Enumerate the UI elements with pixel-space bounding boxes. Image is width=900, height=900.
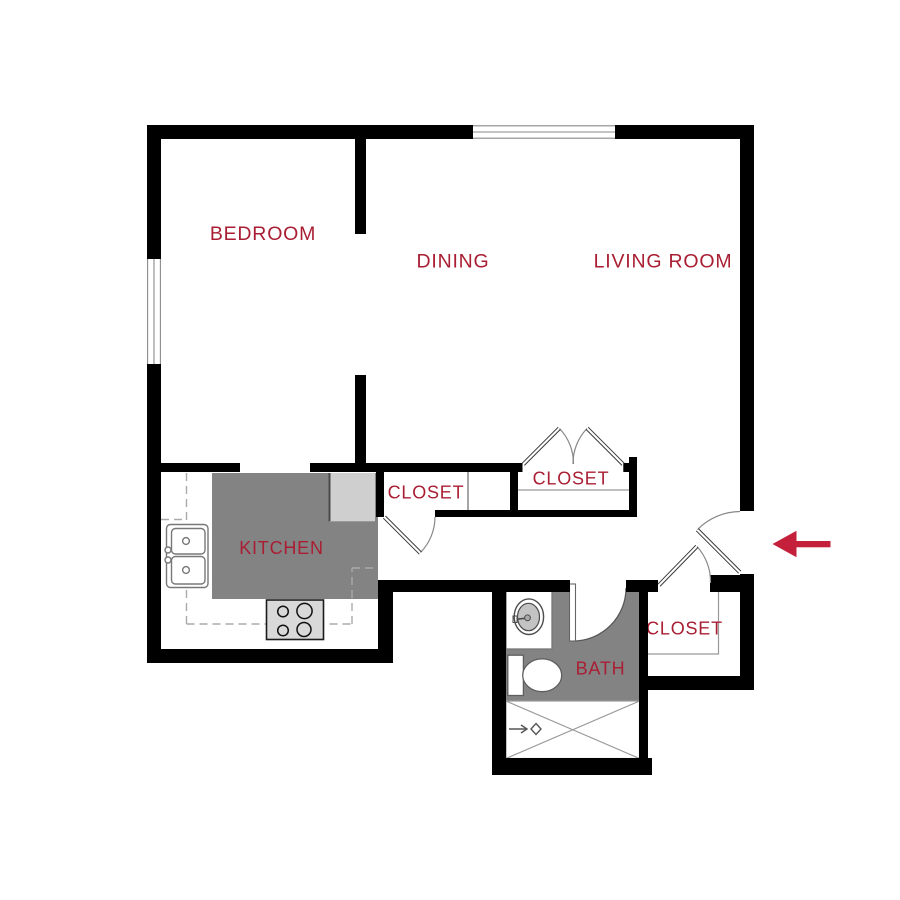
svg-text:KITCHEN: KITCHEN bbox=[239, 538, 324, 558]
svg-text:BEDROOM: BEDROOM bbox=[210, 223, 316, 245]
svg-text:BATH: BATH bbox=[576, 659, 626, 679]
svg-text:DINING: DINING bbox=[416, 251, 489, 273]
svg-text:CLOSET: CLOSET bbox=[646, 619, 723, 639]
svg-text:CLOSET: CLOSET bbox=[533, 469, 610, 489]
svg-text:LIVING ROOM: LIVING ROOM bbox=[594, 251, 733, 273]
svg-text:CLOSET: CLOSET bbox=[388, 483, 465, 503]
